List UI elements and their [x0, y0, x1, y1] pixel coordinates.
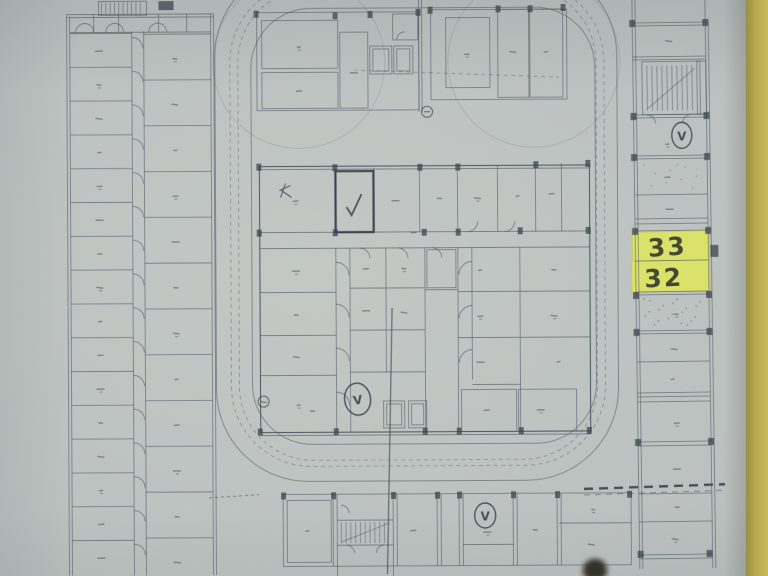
- shadow-blob: [580, 556, 610, 576]
- desk-strip: [746, 0, 768, 576]
- floor-plan: 33 32 V V V: [0, 0, 746, 576]
- paper-grain: [0, 0, 746, 576]
- paper-sheet: 33 32 V V V: [0, 0, 746, 576]
- photo-of-floor-plan: 33 32 V V V: [0, 0, 768, 576]
